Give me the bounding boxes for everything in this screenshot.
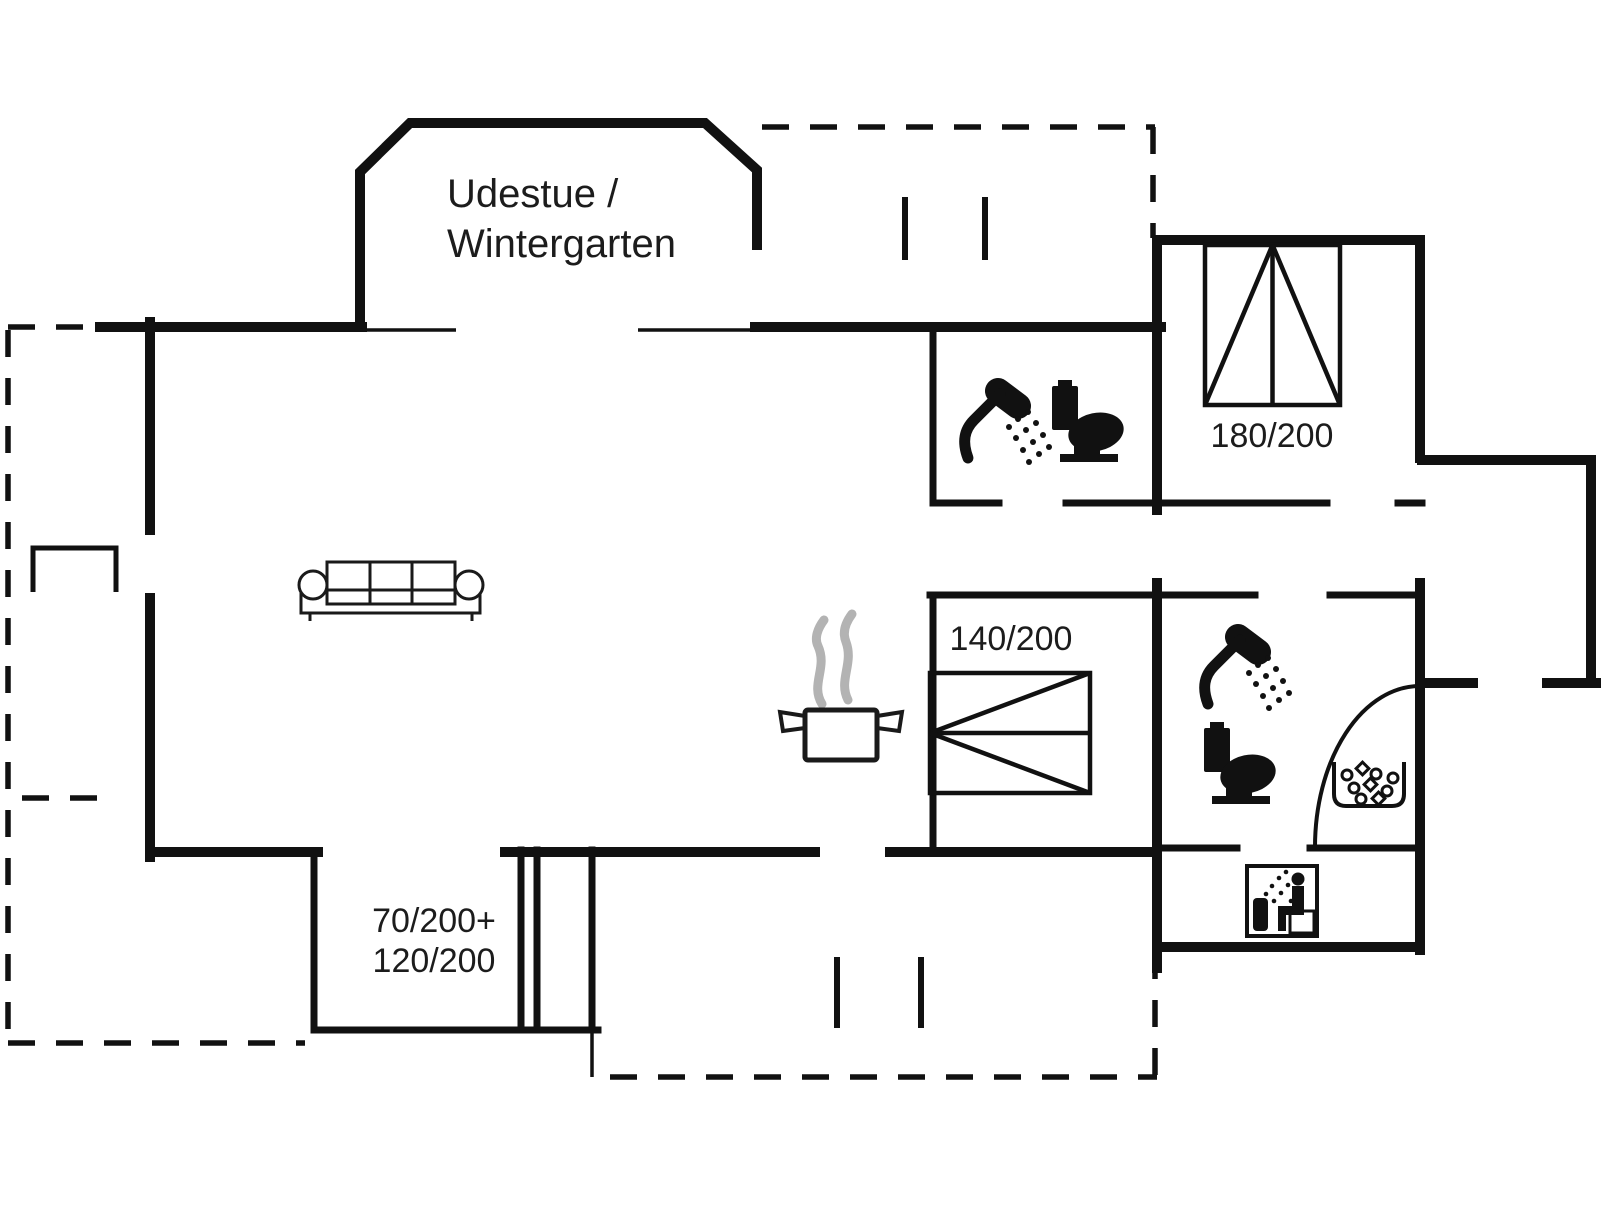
double-bed-icon [1205, 245, 1340, 405]
terrace-niche [33, 548, 116, 592]
terrace-dashed-outline [8, 127, 1157, 1077]
cooking-pot-icon [780, 614, 902, 760]
shower-icon [965, 391, 1052, 465]
room-label-line1: Udestue / [447, 172, 619, 216]
bathroom1 [965, 380, 1128, 465]
door-tick-marks [837, 197, 985, 1028]
conservatory: Udestue / Wintergarten [447, 172, 676, 266]
bed-size-label: 140/200 [950, 620, 1073, 658]
whirlpool-bubbles-icon [1334, 762, 1404, 806]
sofa-icon [299, 562, 483, 621]
bed-size-label-line2: 120/200 [373, 942, 496, 980]
floor-plan: 180/200 140/200 70/200+ 120/200 Udestue … [0, 0, 1606, 1205]
single-bed-icon [930, 673, 1090, 793]
entrance-annex-walls [1422, 460, 1591, 683]
bedroom-small: 140/200 [930, 620, 1090, 793]
bedroom-double: 180/200 [1205, 245, 1340, 455]
bed-size-label-line1: 70/200+ [372, 902, 496, 940]
floor-plan-page: 180/200 140/200 70/200+ 120/200 Udestue … [0, 0, 1606, 1205]
toilet-icon [1052, 380, 1127, 462]
sauna-person-icon [1247, 866, 1317, 936]
room-label-line2: Wintergarten [447, 222, 676, 266]
exterior-walls [100, 123, 1596, 968]
toilet-icon [1204, 722, 1279, 804]
steam-icon [816, 614, 852, 704]
bunk-room: 70/200+ 120/200 [372, 902, 496, 980]
shower-icon [1205, 637, 1292, 711]
bed-size-label: 180/200 [1211, 417, 1334, 455]
bathroom2 [1204, 637, 1404, 806]
